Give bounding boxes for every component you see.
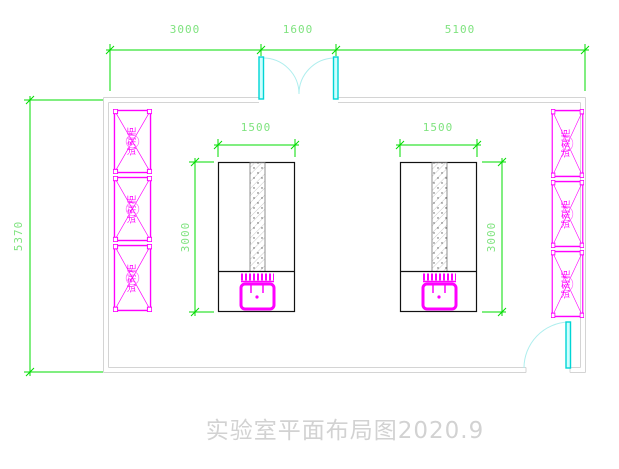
door-leaf-left (259, 57, 264, 99)
sink-symbol (423, 277, 456, 309)
single-back-door (524, 322, 571, 368)
cad-floorplan-view: { "title": "实验室平面布局图2020.9", "room": { "… (0, 0, 619, 469)
cabinet-cell (113, 176, 151, 241)
reagent-cabinets-right (551, 109, 584, 317)
floorplan-drawing (0, 0, 619, 469)
cabinet-cell (113, 244, 151, 311)
cabinet-cell (551, 250, 584, 317)
cabinet-cell (551, 180, 584, 247)
lab-bench-right (401, 163, 477, 312)
cabinet-cell (113, 109, 151, 173)
sink-symbol (241, 277, 274, 309)
drawing-title: 实验室平面布局图2020.9 (185, 415, 505, 447)
lab-bench-left (219, 163, 295, 312)
cabinet-cell (551, 109, 584, 177)
room-walls (104, 98, 586, 373)
double-entry-door (259, 57, 338, 99)
door-leaf-right (334, 57, 339, 99)
reagent-cabinets-left (113, 109, 151, 311)
door-leaf (566, 322, 571, 368)
